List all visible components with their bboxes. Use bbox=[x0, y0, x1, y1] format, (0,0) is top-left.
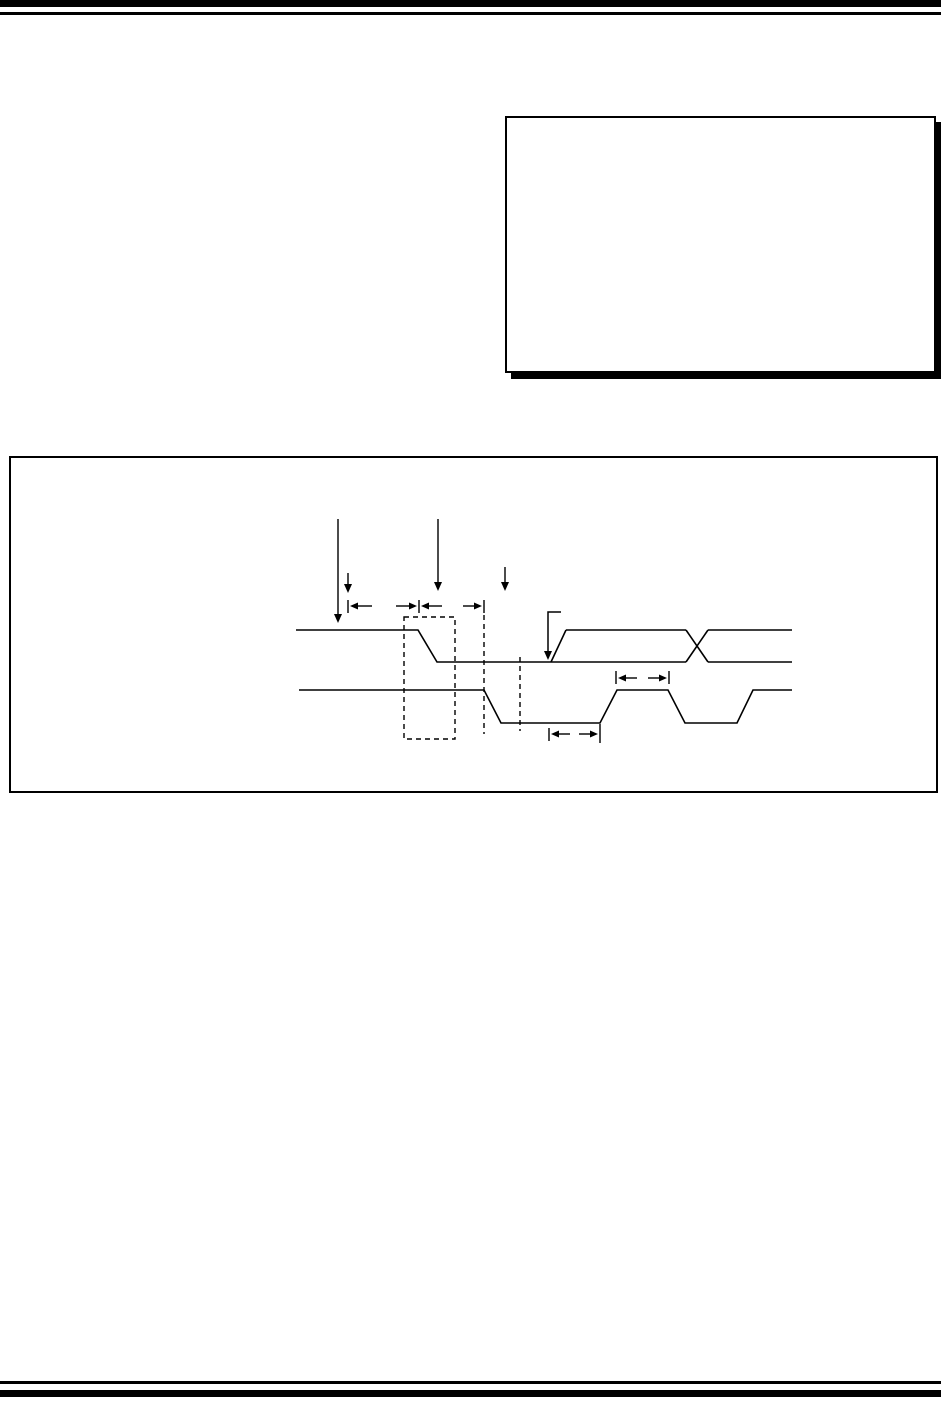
page-bottom-thick-rule bbox=[0, 1390, 941, 1397]
tall-down-arrow-mid-head bbox=[434, 582, 442, 591]
signal1-high-fall-low bbox=[296, 630, 686, 662]
dimension-arrowhead bbox=[551, 731, 559, 738]
timing-diagram-svg bbox=[0, 0, 941, 1412]
page-bottom-thin-rule bbox=[0, 1381, 941, 1384]
short-down-arrow-mid-head bbox=[501, 582, 509, 591]
short-down-arrow-left-head bbox=[344, 584, 352, 593]
dimension-arrowhead bbox=[590, 731, 598, 738]
dimension-arrowhead bbox=[409, 603, 417, 610]
signal2-waveform bbox=[299, 690, 792, 723]
dashed-uncertainty-box bbox=[404, 617, 455, 739]
dimension-arrowhead bbox=[350, 603, 358, 610]
dimension-arrowhead bbox=[618, 675, 626, 682]
tall-down-arrow-left-head bbox=[334, 614, 342, 623]
signal1-rising-edge bbox=[551, 630, 566, 662]
dimension-arrowhead bbox=[659, 675, 667, 682]
dimension-arrowhead bbox=[474, 603, 482, 610]
dimension-arrowhead bbox=[421, 603, 429, 610]
corner-pointer-arrow-head bbox=[544, 651, 552, 660]
